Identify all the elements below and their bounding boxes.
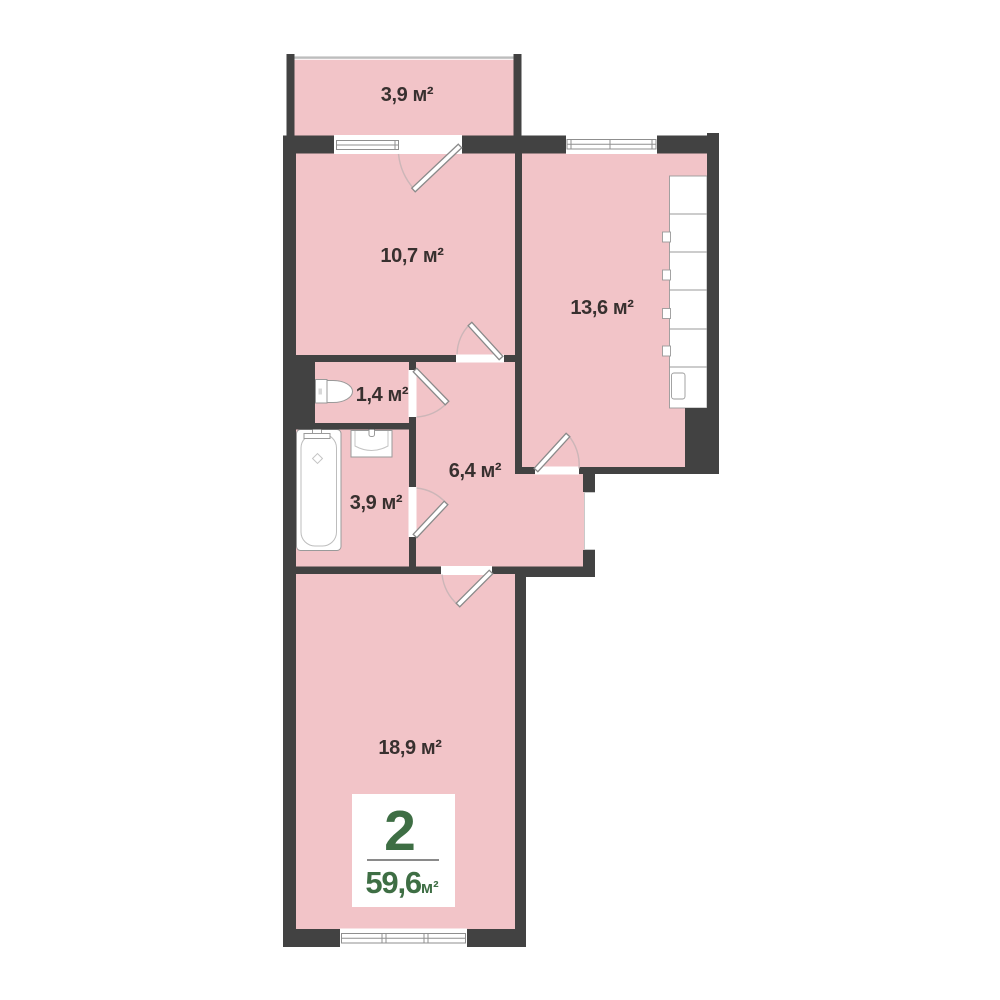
svg-text:18,9 м²: 18,9 м² xyxy=(378,737,442,759)
svg-text:13,6 м²: 13,6 м² xyxy=(570,297,634,319)
svg-text:6,4 м²: 6,4 м² xyxy=(449,460,502,482)
svg-text:1,4 м²: 1,4 м² xyxy=(356,384,409,406)
svg-text:3,9 м²: 3,9 м² xyxy=(381,84,434,106)
svg-text:10,7 м²: 10,7 м² xyxy=(380,245,444,267)
svg-text:2: 2 xyxy=(384,799,416,863)
svg-text:3,9 м²: 3,9 м² xyxy=(350,492,403,514)
